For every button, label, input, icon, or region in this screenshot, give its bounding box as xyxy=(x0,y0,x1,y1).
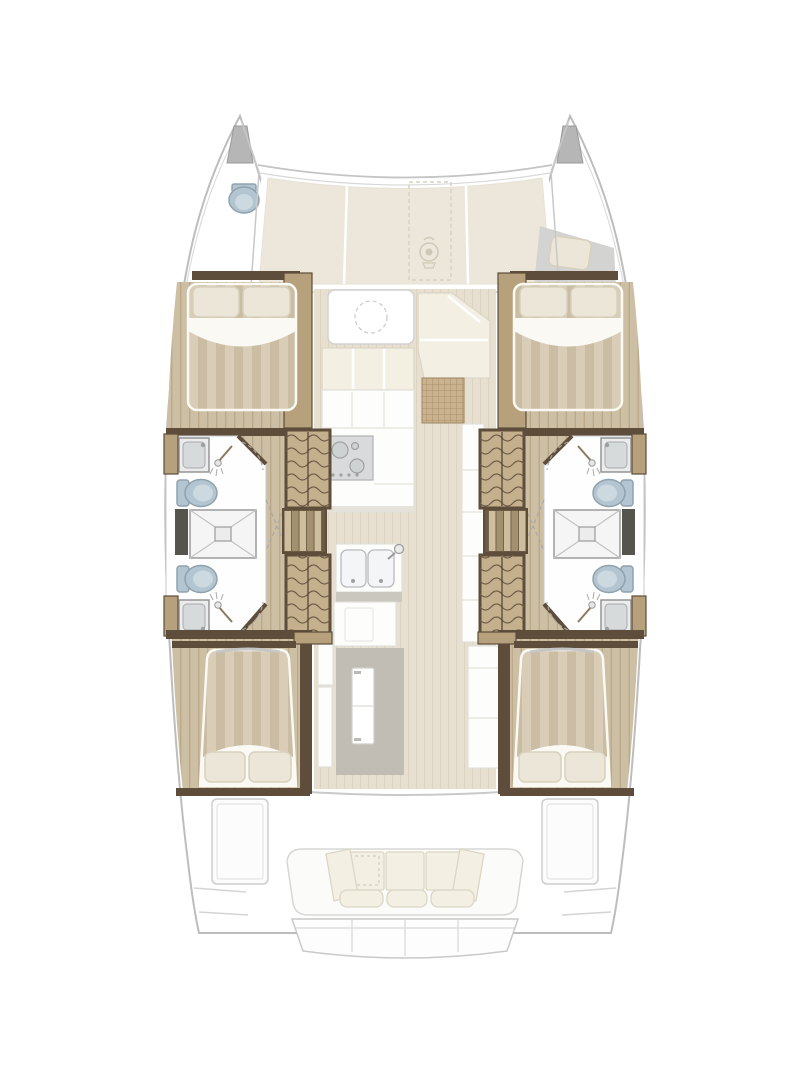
salon-door-panel xyxy=(336,648,404,775)
port-forepeak-toilet xyxy=(229,184,259,213)
salon xyxy=(314,289,502,789)
dinette-bench-port xyxy=(322,348,414,390)
forepeak-cushion xyxy=(548,235,592,270)
seat-cushion xyxy=(387,890,427,907)
counter-edge xyxy=(336,592,402,602)
burner xyxy=(332,442,348,458)
galley-island xyxy=(334,602,396,646)
galley-sink-unit xyxy=(336,544,404,602)
seat-cushion xyxy=(431,890,474,907)
wicker-mat xyxy=(422,378,464,423)
foredeck-sunpad xyxy=(259,178,551,284)
catamaran-floorplan xyxy=(0,0,810,1080)
cockpit-sofa xyxy=(287,849,523,915)
dinette-table xyxy=(328,290,414,344)
seat-cushion xyxy=(340,890,383,907)
burner xyxy=(352,443,359,450)
burner xyxy=(350,459,364,473)
galley-counter xyxy=(322,390,414,512)
sofa-backrest xyxy=(386,852,424,890)
port-salon-cabinet xyxy=(318,630,333,767)
transom-steps xyxy=(292,919,518,958)
cooktop xyxy=(327,436,373,480)
starboard-aft-cabinet xyxy=(468,646,502,768)
floorplan-canvas xyxy=(0,0,810,1080)
